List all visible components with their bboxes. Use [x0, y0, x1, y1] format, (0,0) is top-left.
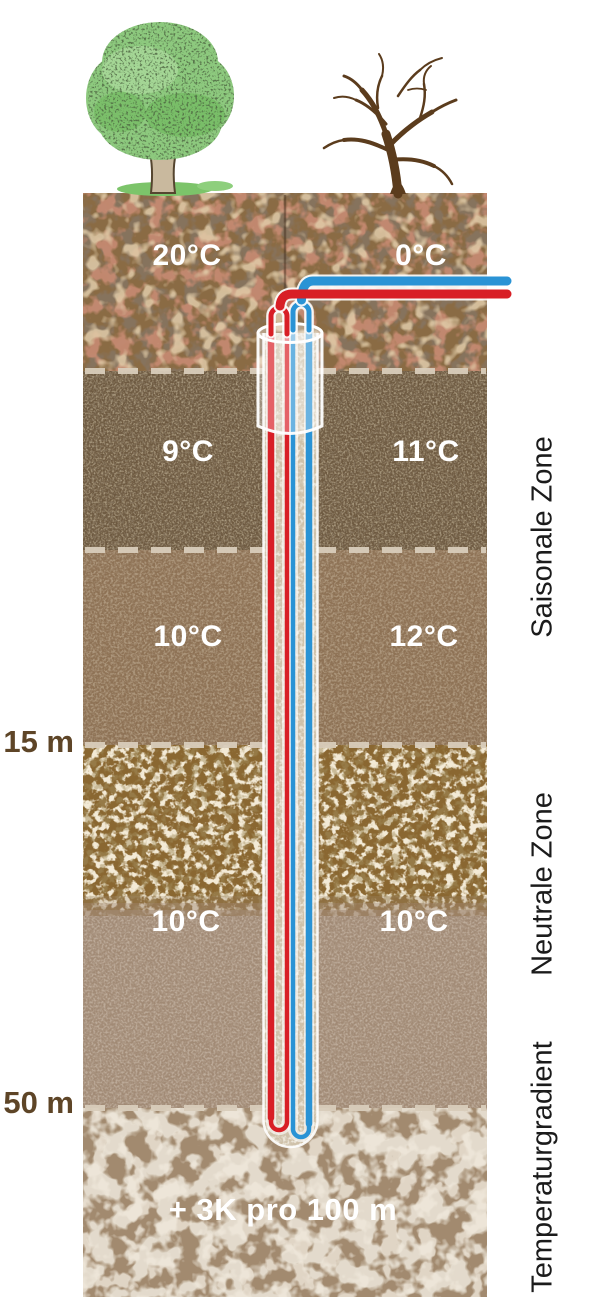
temp-label-layer3-left: 10°C [153, 620, 222, 654]
temp-label-layer3-right: 12°C [389, 620, 458, 654]
zone-label-gradient: Temperaturgradient [527, 1041, 560, 1292]
temp-label-layer2-right: 11°C [392, 435, 459, 469]
temp-label-layer2-left: 9°C [162, 435, 214, 469]
zone-label-seasonal: Saisonale Zone [527, 436, 560, 638]
temp-label-layer1-left: 20°C [152, 239, 221, 273]
temp-label-layer4-right: 10°C [379, 905, 448, 939]
borehole-casing [258, 324, 322, 434]
summer-tree-crown [86, 16, 238, 168]
depth-label-50m: 50 m [3, 1085, 74, 1121]
scene-svg [0, 0, 600, 1300]
winter-tree-icon [324, 54, 456, 194]
depth-label-15m: 15 m [3, 724, 74, 760]
gradient-note-label: + 3K pro 100 m [169, 1192, 397, 1228]
temp-label-layer4-left: 10°C [151, 905, 220, 939]
zone-label-neutral: Neutrale Zone [527, 792, 560, 976]
geothermal-probe-infographic: 20°C 0°C 9°C 11°C 10°C 12°C 10°C 10°C 15… [0, 0, 600, 1300]
temp-label-layer1-right: 0°C [395, 239, 447, 273]
summer-tree-icon [86, 16, 238, 196]
